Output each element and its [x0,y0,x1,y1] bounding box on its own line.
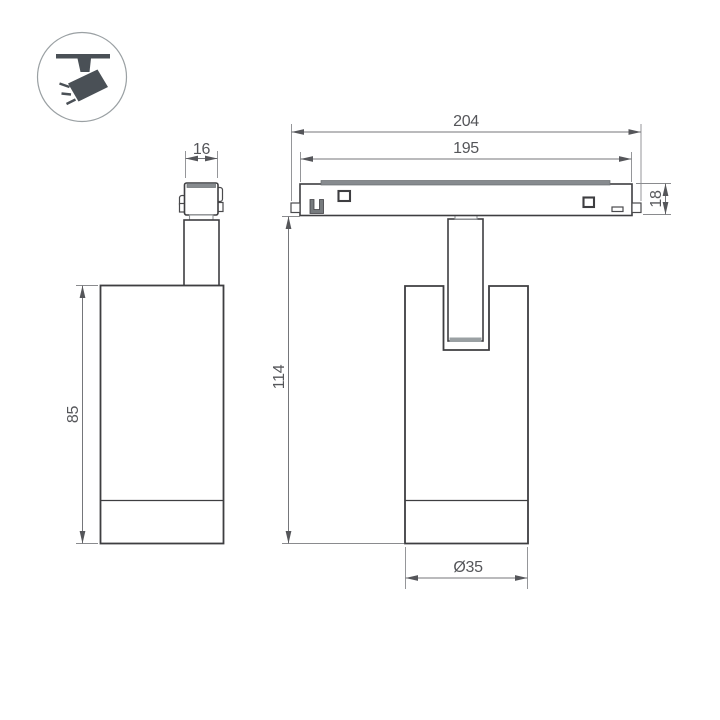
dimension-195: 195 [301,140,632,182]
dim-label-body-diameter: Ø35 [453,559,483,576]
rail-slot [612,207,623,212]
rail-window-right [584,198,595,208]
dim-label-track-outer: 204 [453,113,479,130]
rail-pin-right [632,203,641,213]
dimension-16: 16 [186,141,218,178]
dim-label-adapter-width: 16 [193,141,211,158]
dim-label-body-height: 85 [65,406,82,424]
dim-label-track-height: 18 [648,190,665,208]
front-stem-end [450,338,482,343]
spotlight-icon [38,33,127,122]
dim-label-overall-height: 114 [271,364,288,389]
rail-pin-left [291,203,300,213]
icon-track-bar [56,54,110,59]
side-view [101,183,224,544]
dim-label-track-inner: 195 [453,140,479,157]
front-view [291,181,641,544]
dimension-114: 114 [271,217,404,544]
side-body [101,286,224,544]
rail-magnet-strip [321,181,610,186]
technical-drawing: 16 85 204 195 18 114 Ø35 [0,0,720,720]
dimension-35: Ø35 [406,547,528,589]
light-ray-icon [62,94,72,95]
rail-window-left [339,191,351,201]
front-stem [448,219,483,341]
side-stem [184,220,219,286]
dimension-85: 85 [65,286,98,544]
drawing-canvas: 16 85 204 195 18 114 Ø35 [0,0,720,720]
side-adapter-magnet-strip [187,184,216,188]
